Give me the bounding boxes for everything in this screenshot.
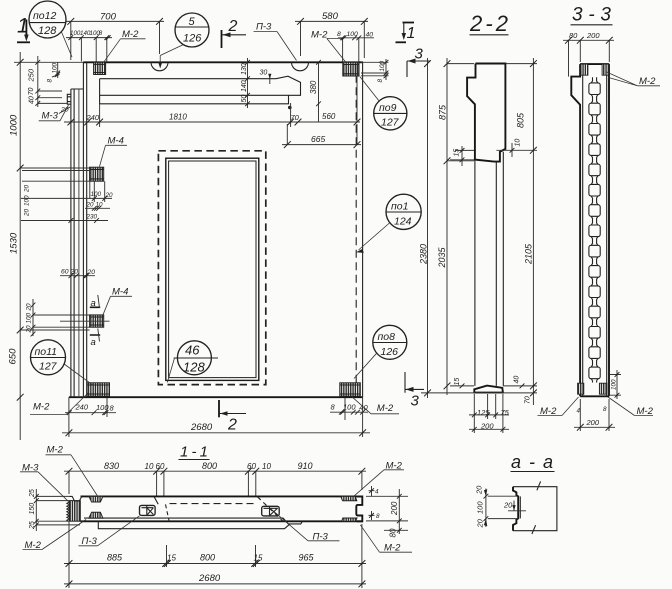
svg-text:100: 100 [24,195,31,206]
svg-text:70: 70 [525,396,532,404]
svg-text:8: 8 [331,402,336,411]
svg-text:1530: 1530 [9,232,20,254]
svg-text:20: 20 [105,192,114,199]
svg-text:2680: 2680 [190,422,213,433]
svg-text:15: 15 [454,378,461,386]
svg-text:М-2: М-2 [33,402,50,413]
svg-text:10: 10 [515,139,522,147]
svg-text:40: 40 [366,31,374,38]
svg-text:10: 10 [262,462,271,471]
svg-text:8: 8 [376,513,380,520]
svg-text:1810: 1810 [169,113,187,122]
svg-text:10: 10 [96,202,104,209]
svg-text:127: 127 [39,361,58,373]
svg-text:по1: по1 [391,201,408,213]
svg-text:100: 100 [611,379,618,390]
svg-text:100: 100 [347,31,359,38]
svg-text:8: 8 [337,31,341,38]
svg-text:128: 128 [183,360,205,375]
svg-text:128: 128 [38,25,57,37]
svg-text:230: 230 [86,213,98,220]
svg-text:по8: по8 [378,331,396,343]
svg-text:650: 650 [8,348,19,365]
svg-text:а: а [91,337,96,348]
svg-text:100: 100 [343,402,356,411]
svg-text:20: 20 [503,501,513,510]
svg-text:560: 560 [322,112,336,121]
svg-text:2: 2 [228,18,238,35]
svg-text:25: 25 [29,521,36,530]
svg-text:60: 60 [156,462,165,471]
svg-text:8: 8 [99,30,103,37]
svg-text:910: 910 [298,461,313,471]
svg-text:150: 150 [29,503,36,515]
svg-text:800: 800 [200,553,215,563]
svg-text:100: 100 [91,191,102,198]
svg-text:3: 3 [415,46,424,63]
svg-text:20: 20 [70,269,79,276]
svg-text:130: 130 [241,63,248,75]
svg-text:М-3: М-3 [42,111,59,122]
svg-text:М-2: М-2 [47,445,64,456]
svg-text:40: 40 [28,96,35,104]
svg-text:20: 20 [476,518,485,528]
svg-text:200: 200 [390,501,399,516]
svg-text:126: 126 [381,346,399,358]
svg-text:8: 8 [377,79,384,83]
svg-text:2380: 2380 [419,244,429,265]
svg-text:800: 800 [202,461,217,471]
svg-text:2105: 2105 [524,243,534,265]
svg-text:70: 70 [291,113,300,122]
svg-text:8: 8 [47,79,54,83]
svg-text:46: 46 [185,343,200,358]
svg-text:50: 50 [241,95,248,103]
svg-text:по11: по11 [35,346,58,358]
svg-text:140: 140 [241,80,248,92]
svg-text:1: 1 [407,25,416,42]
svg-text:20: 20 [87,269,96,276]
svg-text:4: 4 [577,408,581,415]
svg-text:60: 60 [61,269,69,276]
svg-text:П-3: П-3 [82,536,98,547]
svg-text:100: 100 [476,501,485,514]
svg-text:20: 20 [24,208,31,217]
svg-text:885: 885 [107,553,123,563]
svg-text:3-3: 3-3 [572,5,611,26]
svg-text:665: 665 [311,134,325,144]
svg-text:М-2: М-2 [639,76,656,87]
svg-text:2680: 2680 [198,573,221,584]
svg-text:200: 200 [480,422,494,431]
svg-text:124: 124 [394,216,412,228]
svg-text:20: 20 [26,303,33,312]
svg-text:а: а [91,298,96,309]
svg-text:2: 2 [227,417,237,434]
svg-text:580: 580 [322,11,339,22]
svg-text:М-2: М-2 [377,403,394,414]
svg-text:20: 20 [26,325,33,334]
svg-text:700: 700 [100,12,117,23]
svg-text:100: 100 [96,403,109,412]
svg-text:8: 8 [110,403,115,412]
svg-text:5: 5 [189,16,196,28]
svg-text:15: 15 [254,554,263,563]
svg-text:1-1: 1-1 [180,444,208,461]
svg-text:100: 100 [379,60,386,71]
svg-text:805: 805 [516,112,526,128]
svg-text:10: 10 [145,462,154,471]
svg-text:240: 240 [86,113,100,122]
svg-text:М-4: М-4 [108,136,124,147]
svg-text:25: 25 [29,489,36,498]
svg-text:830: 830 [104,461,119,471]
svg-text:2035: 2035 [437,246,447,268]
svg-text:80: 80 [389,528,398,537]
svg-text:8: 8 [603,406,607,413]
svg-text:М-4: М-4 [112,287,128,298]
svg-text:80: 80 [569,31,578,40]
svg-text:2-2: 2-2 [469,11,508,36]
svg-text:125: 125 [477,408,490,417]
svg-text:П-3: П-3 [256,22,272,33]
svg-text:20: 20 [24,184,31,193]
svg-text:380: 380 [309,80,318,94]
svg-text:40: 40 [514,376,521,384]
svg-text:30: 30 [260,70,268,77]
svg-text:60: 60 [247,462,256,471]
svg-text:М-2: М-2 [311,30,328,41]
svg-text:20: 20 [475,485,484,495]
svg-text:126: 126 [183,33,202,45]
svg-text:200: 200 [586,31,600,40]
svg-text:4: 4 [375,489,379,496]
svg-text:250: 250 [27,68,36,82]
svg-text:875: 875 [438,104,448,120]
svg-text:20: 20 [86,202,95,209]
svg-text:127: 127 [381,117,400,129]
svg-text:М-2: М-2 [122,29,139,40]
svg-text:965: 965 [299,553,315,563]
svg-text:3: 3 [411,393,420,410]
svg-text:по12: по12 [33,10,56,22]
svg-text:70: 70 [28,88,35,96]
svg-text:200: 200 [586,418,600,427]
svg-text:а-а: а-а [511,452,553,472]
svg-text:по9: по9 [379,102,397,114]
svg-text:75: 75 [501,408,510,417]
svg-text:100: 100 [26,312,33,323]
svg-text:15: 15 [167,554,176,563]
svg-text:1000: 1000 [9,114,20,136]
